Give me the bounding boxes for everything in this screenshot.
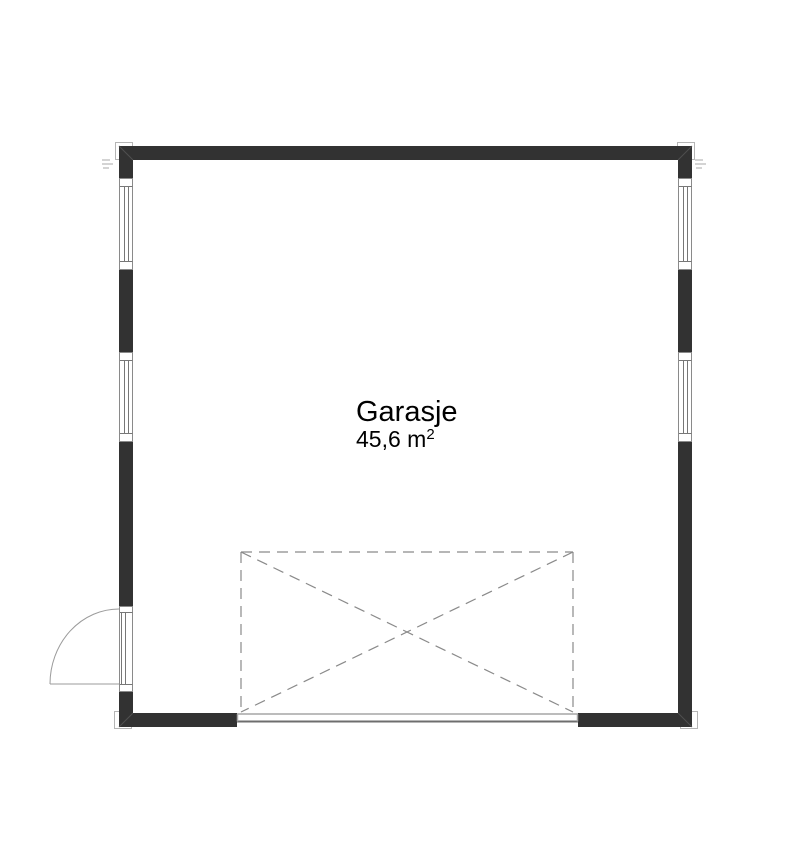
micro-annotation-left [102,160,113,168]
wall-bottom-left-segment [119,713,237,727]
wall-left-segment-2 [119,270,133,352]
window-frame [120,179,133,270]
window-right-1 [679,179,692,270]
window-left-1 [120,179,133,270]
wall-right-segment-1 [678,146,692,178]
window-frame [120,353,133,442]
window-frame [679,179,692,270]
wall-right-segment-3 [678,442,692,727]
floor-plan: Garasje 45,6 m2 [0,0,800,862]
window-right-2 [679,353,692,442]
floor-plan-drawing: Garasje 45,6 m2 [0,0,800,862]
room-area-exponent: 2 [426,426,434,443]
room-name-label: Garasje [356,396,458,428]
room-labels: Garasje 45,6 m2 [356,396,458,452]
micro-annotation-right [695,160,706,168]
wall-left-segment-3 [119,442,133,606]
wall-right-segment-2 [678,270,692,352]
window-frame [679,353,692,442]
window-left-2 [120,353,133,442]
room-area-value: 45,6 m [356,426,426,452]
door-swing-arc [50,609,119,684]
entrance-door [50,607,133,692]
garage-door-opening [237,714,578,722]
wall-bottom-right-segment [578,713,692,727]
room-area-label: 45,6 m2 [356,426,435,452]
parking-area-dashed [241,552,573,712]
wall-left-segment-1 [119,146,133,178]
wall-top [119,146,692,160]
